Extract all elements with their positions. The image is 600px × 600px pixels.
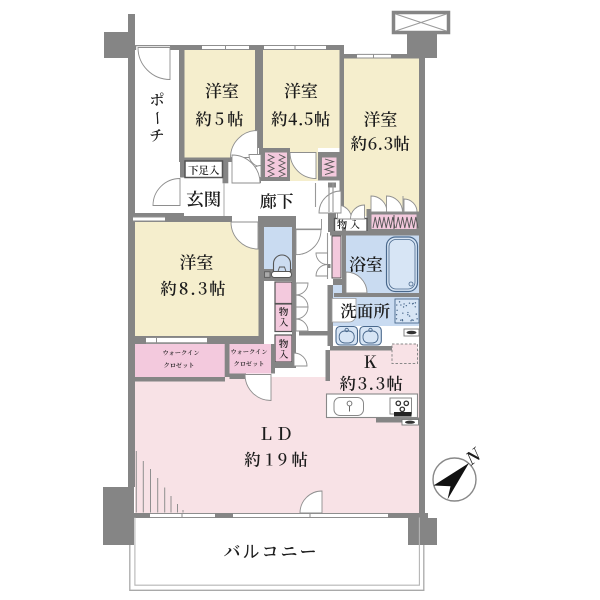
- svg-text:洋室: 洋室: [180, 249, 214, 274]
- svg-text:浴室: 浴室: [349, 251, 383, 276]
- svg-text:廊下: 廊下: [260, 188, 294, 213]
- svg-text:ウォークイン: ウォークイン: [230, 347, 267, 356]
- svg-text:約3.3帖: 約3.3帖: [339, 371, 404, 395]
- svg-text:物入: 物入: [337, 216, 363, 231]
- svg-text:クロゼット: クロゼット: [164, 361, 195, 370]
- svg-text:約5帖: 約5帖: [195, 106, 247, 130]
- svg-text:ー: ー: [147, 110, 168, 125]
- svg-text:洋室: 洋室: [364, 106, 398, 131]
- svg-text:洗面所: 洗面所: [340, 298, 390, 322]
- svg-text:下足入: 下足入: [188, 163, 220, 178]
- svg-text:玄関: 玄関: [186, 187, 221, 212]
- svg-text:約6.3帖: 約6.3帖: [350, 131, 410, 155]
- svg-text:チ: チ: [149, 125, 164, 146]
- svg-text:洋室: 洋室: [284, 77, 318, 102]
- svg-text:バルコニー: バルコニー: [224, 538, 319, 563]
- svg-text:ウォークイン: ウォークイン: [162, 348, 199, 357]
- svg-text:洋室: 洋室: [205, 77, 239, 102]
- svg-text:クロゼット: クロゼット: [234, 359, 265, 368]
- svg-text:入: 入: [279, 315, 289, 329]
- svg-text:約8.3帖: 約8.3帖: [160, 276, 228, 300]
- svg-text:ポ: ポ: [149, 89, 164, 110]
- svg-text:K: K: [364, 348, 377, 373]
- svg-text:約4.5帖: 約4.5帖: [271, 106, 331, 130]
- svg-text:入: 入: [279, 347, 289, 361]
- svg-text:約19帖: 約19帖: [244, 447, 312, 471]
- svg-text:LD: LD: [261, 420, 298, 446]
